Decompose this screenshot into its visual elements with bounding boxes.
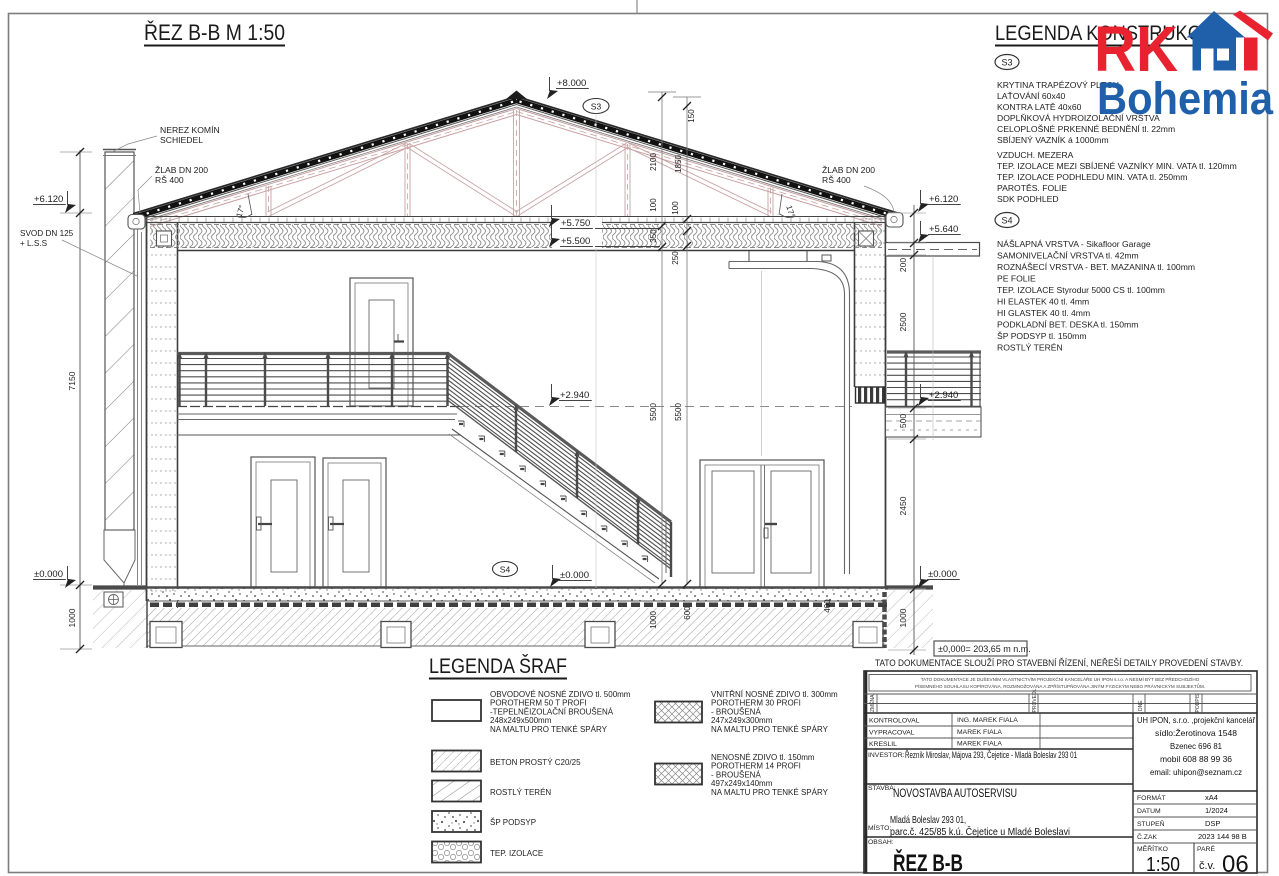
svg-text:POROTHERM 14 PROFI: POROTHERM 14 PROFI bbox=[711, 762, 801, 771]
svg-text:BETON PROSTÝ C20/25: BETON PROSTÝ C20/25 bbox=[490, 758, 581, 767]
svg-text:-TEPELNĚIZOLAČNÍ BROUŠENÁ: -TEPELNĚIZOLAČNÍ BROUŠENÁ bbox=[490, 707, 614, 716]
svg-text:VZDUCH. MEZERA: VZDUCH. MEZERA bbox=[997, 150, 1074, 160]
svg-text:NA MALTU PRO TENKÉ SPÁRY: NA MALTU PRO TENKÉ SPÁRY bbox=[711, 788, 829, 797]
svg-text:KONTRA LATĚ 40x60: KONTRA LATĚ 40x60 bbox=[997, 102, 1082, 112]
svg-text:1000: 1000 bbox=[898, 608, 908, 627]
svg-text:ROSTLÝ TERÉN: ROSTLÝ TERÉN bbox=[490, 788, 551, 797]
svg-text:7150: 7150 bbox=[67, 371, 77, 390]
svg-text:OBVODOVÉ NOSNÉ ZDIVO tl. 500mm: OBVODOVÉ NOSNÉ ZDIVO tl. 500mm bbox=[490, 690, 631, 699]
svg-text:±0,000= 203,65 m n.m.: ±0,000= 203,65 m n.m. bbox=[938, 644, 1031, 654]
svg-text:- BROUŠENÁ: - BROUŠENÁ bbox=[711, 770, 761, 779]
svg-text:TATO DOKUMENTACE JE DUŠEVNÍM V: TATO DOKUMENTACE JE DUŠEVNÍM VLASTNICTVÍ… bbox=[921, 675, 1200, 682]
svg-text:Bzenec 696 81: Bzenec 696 81 bbox=[1170, 742, 1222, 751]
svg-text:CELOPLOŠNÉ PRKENNÉ BEDNĚNÍ tl.: CELOPLOŠNÉ PRKENNÉ BEDNĚNÍ tl. 22mm bbox=[997, 124, 1175, 134]
svg-text:MAREK FIALA: MAREK FIALA bbox=[957, 741, 1002, 748]
svg-text:150: 150 bbox=[687, 109, 696, 123]
svg-text:FORMÁT: FORMÁT bbox=[1137, 793, 1166, 802]
svg-text:PAROTĚS. FOLIE: PAROTĚS. FOLIE bbox=[997, 183, 1067, 193]
svg-text:SAMONIVELAČNÍ VRSTVA tl. 42mm: SAMONIVELAČNÍ VRSTVA tl. 42mm bbox=[997, 251, 1139, 261]
svg-text:- BROUŠENÁ: - BROUŠENÁ bbox=[711, 707, 761, 716]
svg-text:Č.ZAK: Č.ZAK bbox=[1137, 832, 1157, 841]
svg-text:DATUM: DATUM bbox=[1137, 808, 1161, 815]
svg-text:ING. MAREK FIALA: ING. MAREK FIALA bbox=[957, 717, 1018, 724]
svg-text:KONTROLOVAL: KONTROLOVAL bbox=[869, 718, 920, 725]
svg-text:500: 500 bbox=[898, 414, 908, 428]
svg-text:SDK PODHLED: SDK PODHLED bbox=[997, 194, 1059, 204]
svg-text:mobil 608 88 99 36: mobil 608 88 99 36 bbox=[1160, 755, 1232, 764]
svg-text:+6.120: +6.120 bbox=[34, 194, 63, 205]
svg-text:TEP. IZOLACE PODHLEDU MIN. VAT: TEP. IZOLACE PODHLEDU MIN. VATA tl. 250m… bbox=[997, 172, 1187, 182]
svg-text:+2.940: +2.940 bbox=[929, 390, 958, 401]
svg-text:č.v.: č.v. bbox=[1199, 860, 1215, 872]
svg-text:STUPEŇ: STUPEŇ bbox=[1137, 819, 1165, 828]
svg-text:KRESLIL: KRESLIL bbox=[869, 741, 897, 748]
svg-text:Bohemia: Bohemia bbox=[1097, 73, 1274, 124]
svg-text:NA MALTU PRO TENKÉ SPÁRY: NA MALTU PRO TENKÉ SPÁRY bbox=[490, 725, 608, 734]
svg-text:PODPIS: PODPIS bbox=[1195, 693, 1201, 713]
svg-text:250: 250 bbox=[671, 251, 680, 265]
svg-text:LEGENDA ŠRAF: LEGENDA ŠRAF bbox=[429, 655, 567, 678]
svg-text:ROZNÁŠECÍ VRSTVA - BET. MAZANI: ROZNÁŠECÍ VRSTVA - BET. MAZANINA tl. 100… bbox=[997, 262, 1195, 272]
svg-text:2023 144 98 B: 2023 144 98 B bbox=[1198, 832, 1247, 841]
svg-text:±0.000: ±0.000 bbox=[560, 570, 589, 581]
svg-text:100: 100 bbox=[671, 201, 680, 215]
svg-text:Mladá Boleslav 293 01,: Mladá Boleslav 293 01, bbox=[890, 814, 966, 826]
svg-text:+ L.S.S: + L.S.S bbox=[20, 239, 48, 248]
svg-text:NENOSNÉ ZDIVO tl. 150mm: NENOSNÉ ZDIVO tl. 150mm bbox=[711, 753, 815, 762]
svg-text:STAVBA:: STAVBA: bbox=[868, 785, 896, 792]
svg-text:sídlo:Žerotinova 1548: sídlo:Žerotinova 1548 bbox=[1155, 728, 1237, 738]
svg-text:5500: 5500 bbox=[649, 403, 658, 421]
svg-text:NOVOSTAVBA AUTOSERVISU: NOVOSTAVBA AUTOSERVISU bbox=[893, 786, 1017, 800]
svg-text:PODKLADNÍ BET. DESKA tl. 150mm: PODKLADNÍ BET. DESKA tl. 150mm bbox=[997, 320, 1138, 330]
svg-text:497x249x140mm: 497x249x140mm bbox=[711, 779, 773, 788]
svg-text:S3: S3 bbox=[591, 102, 602, 112]
svg-text:LAŤOVÁNÍ 60x40: LAŤOVÁNÍ 60x40 bbox=[997, 91, 1066, 101]
svg-text:S4: S4 bbox=[500, 565, 511, 575]
svg-text:5500: 5500 bbox=[674, 403, 683, 421]
svg-text:+2.940: +2.940 bbox=[560, 390, 589, 401]
svg-text:06: 06 bbox=[1222, 851, 1249, 876]
svg-text:248x249x500mm: 248x249x500mm bbox=[490, 716, 552, 725]
svg-text:POROTHERM 30 PROFI: POROTHERM 30 PROFI bbox=[711, 699, 801, 708]
svg-text:PE FOLIE: PE FOLIE bbox=[997, 274, 1036, 284]
svg-text:ŘEZ B-B: ŘEZ B-B bbox=[893, 849, 963, 876]
svg-text:1:50: 1:50 bbox=[1146, 854, 1180, 876]
svg-text:HI GLASTEK 40 tl. 4mm: HI GLASTEK 40 tl. 4mm bbox=[997, 308, 1090, 318]
svg-text:2450: 2450 bbox=[898, 496, 908, 515]
svg-text:SBÍJENÝ VAZNÍK á 1000mm: SBÍJENÝ VAZNÍK á 1000mm bbox=[997, 135, 1109, 145]
svg-text:1/2024: 1/2024 bbox=[1205, 806, 1228, 815]
svg-text:2500: 2500 bbox=[898, 312, 908, 331]
svg-text:ŘEZ B-B M 1:50: ŘEZ B-B M 1:50 bbox=[144, 20, 285, 45]
svg-text:+5.500: +5.500 bbox=[561, 236, 590, 247]
svg-text:400: 400 bbox=[823, 599, 832, 613]
svg-text:UH IPON, s.r.o. ,projekční kan: UH IPON, s.r.o. ,projekční kancelář bbox=[1137, 716, 1255, 725]
svg-text:600: 600 bbox=[683, 606, 692, 620]
svg-text:PÍSEMNÉHO SOUHLASU KOPÍROVÁNA,: PÍSEMNÉHO SOUHLASU KOPÍROVÁNA, ROZMNOŽOV… bbox=[915, 682, 1205, 689]
svg-text:247x249x300mm: 247x249x300mm bbox=[711, 716, 773, 725]
svg-text:PROVEDL: PROVEDL bbox=[1032, 688, 1038, 712]
svg-text:+6.120: +6.120 bbox=[929, 194, 958, 205]
svg-text:ŠP PODSYP: ŠP PODSYP bbox=[490, 818, 536, 827]
svg-text:1850: 1850 bbox=[674, 155, 683, 173]
svg-text:±0.000: ±0.000 bbox=[34, 569, 63, 580]
svg-text:RŠ 400: RŠ 400 bbox=[822, 175, 851, 185]
svg-text:POROTHERM 50 T PROFI: POROTHERM 50 T PROFI bbox=[490, 699, 587, 708]
svg-text:S4: S4 bbox=[1001, 216, 1012, 226]
svg-text:+5.750: +5.750 bbox=[561, 218, 590, 229]
svg-text:100: 100 bbox=[649, 198, 658, 212]
svg-text:DSP: DSP bbox=[1205, 819, 1220, 828]
svg-text:SCHIEDEL: SCHIEDEL bbox=[160, 135, 203, 145]
svg-text:TATO DOKUMENTACE SLOUŽÍ PRO ST: TATO DOKUMENTACE SLOUŽÍ PRO STAVEBNÍ ŘÍZ… bbox=[875, 658, 1243, 669]
svg-text:TEP. IZOLACE MEZI SBÍJENÉ VAZN: TEP. IZOLACE MEZI SBÍJENÉ VAZNÍKY MIN. V… bbox=[997, 161, 1237, 171]
svg-text:VYPRACOVAL: VYPRACOVAL bbox=[869, 730, 915, 737]
svg-text:PARÉ: PARÉ bbox=[1197, 844, 1215, 853]
svg-text:VNITŘNÍ NOSNÉ ZDIVO tl. 300mm: VNITŘNÍ NOSNÉ ZDIVO tl. 300mm bbox=[711, 690, 838, 699]
svg-text:S3: S3 bbox=[1001, 58, 1012, 68]
svg-text:DNE: DNE bbox=[1138, 700, 1144, 711]
svg-text:ROSTLÝ TERÉN: ROSTLÝ TERÉN bbox=[997, 343, 1063, 353]
svg-text:xA4: xA4 bbox=[1205, 793, 1218, 802]
svg-text:MAREK FIALA: MAREK FIALA bbox=[957, 729, 1002, 736]
svg-text:+8.000: +8.000 bbox=[557, 78, 586, 89]
svg-text:RŠ 400: RŠ 400 bbox=[155, 175, 184, 185]
svg-text:1000: 1000 bbox=[67, 608, 77, 627]
svg-text:350: 350 bbox=[649, 229, 658, 243]
svg-text:±0.000: ±0.000 bbox=[928, 569, 957, 580]
svg-text:NÁŠLAPNÁ VRSTVA - Sikafloor Ga: NÁŠLAPNÁ VRSTVA - Sikafloor Garage bbox=[997, 239, 1151, 249]
svg-text:email: uhipon@seznam.cz: email: uhipon@seznam.cz bbox=[1150, 768, 1242, 777]
svg-text:MĚŘÍTKO: MĚŘÍTKO bbox=[1137, 844, 1168, 853]
svg-text:Řezník Miroslav, Májova 293, Č: Řezník Miroslav, Májova 293, Čejetice - … bbox=[905, 750, 1077, 761]
svg-text:ŽLAB DN 200: ŽLAB DN 200 bbox=[822, 165, 875, 175]
svg-text:parc.č. 425/85 k.ú. Čejetice u: parc.č. 425/85 k.ú. Čejetice u Mladé Bol… bbox=[890, 825, 1070, 838]
svg-text:ZMĚNA: ZMĚNA bbox=[868, 694, 876, 712]
svg-text:ŠP PODSYP tl. 150mm: ŠP PODSYP tl. 150mm bbox=[997, 331, 1086, 341]
svg-text:SVOD DN 125: SVOD DN 125 bbox=[20, 229, 74, 238]
svg-text:200: 200 bbox=[898, 258, 908, 272]
svg-text:INVESTOR:: INVESTOR: bbox=[868, 752, 905, 759]
svg-text:+5.640: +5.640 bbox=[929, 224, 958, 235]
svg-text:MÍSTO:: MÍSTO: bbox=[868, 823, 891, 832]
svg-text:TEP. IZOLACE Styrodur 5000 CS: TEP. IZOLACE Styrodur 5000 CS tl. 100mm bbox=[997, 285, 1165, 295]
svg-text:OBSAH:: OBSAH: bbox=[868, 839, 894, 846]
svg-text:HI ELASTEK 40 tl. 4mm: HI ELASTEK 40 tl. 4mm bbox=[997, 297, 1089, 307]
svg-text:2100: 2100 bbox=[649, 153, 658, 171]
svg-text:NEREZ KOMÍN: NEREZ KOMÍN bbox=[160, 125, 220, 135]
svg-text:TEP. IZOLACE: TEP. IZOLACE bbox=[490, 849, 543, 858]
svg-text:1000: 1000 bbox=[649, 611, 658, 629]
svg-text:NA MALTU PRO TENKÉ SPÁRY: NA MALTU PRO TENKÉ SPÁRY bbox=[711, 725, 829, 734]
svg-text:ŽLAB DN 200: ŽLAB DN 200 bbox=[155, 165, 208, 175]
